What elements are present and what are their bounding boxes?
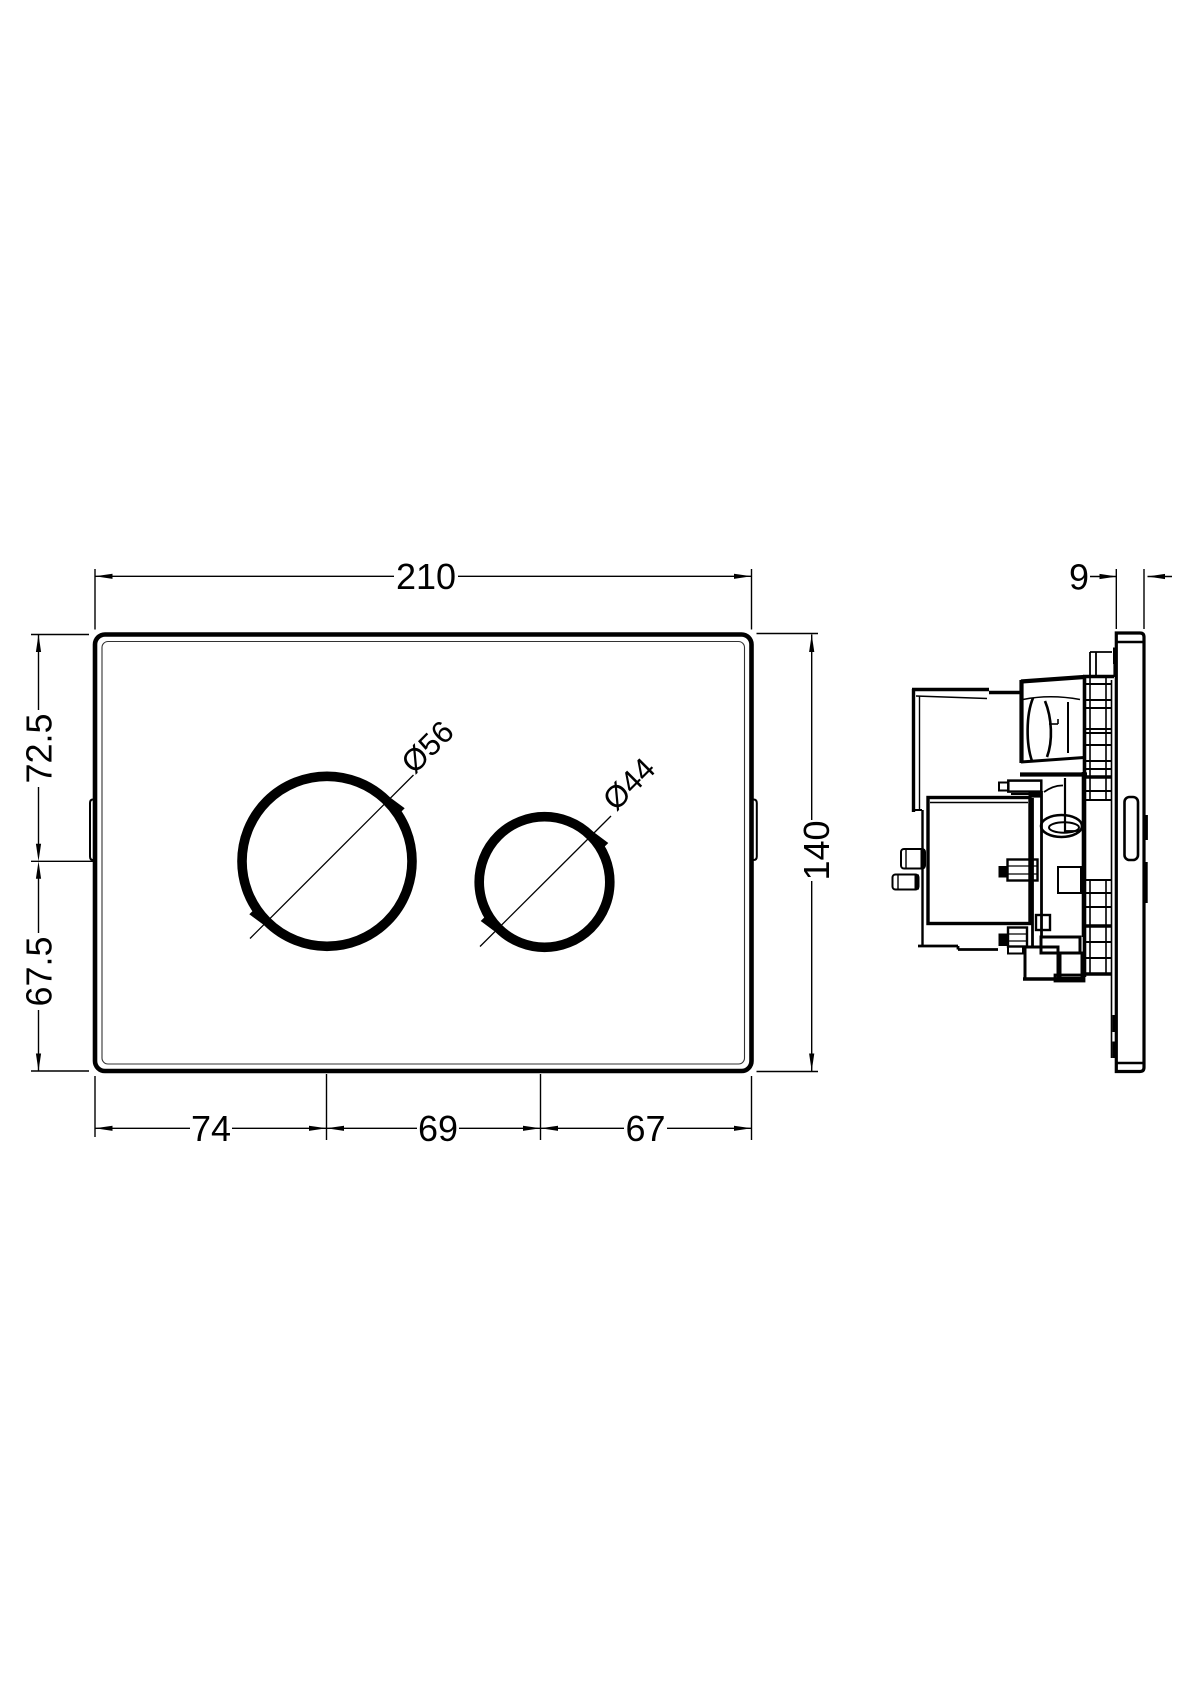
svg-text:140: 140 xyxy=(796,820,837,880)
svg-text:67: 67 xyxy=(625,1108,665,1149)
svg-text:9: 9 xyxy=(1069,557,1089,598)
svg-text:72.5: 72.5 xyxy=(19,713,60,783)
svg-text:210: 210 xyxy=(396,556,456,597)
svg-text:69: 69 xyxy=(418,1108,458,1149)
svg-text:67.5: 67.5 xyxy=(19,936,60,1006)
svg-text:74: 74 xyxy=(191,1108,231,1149)
